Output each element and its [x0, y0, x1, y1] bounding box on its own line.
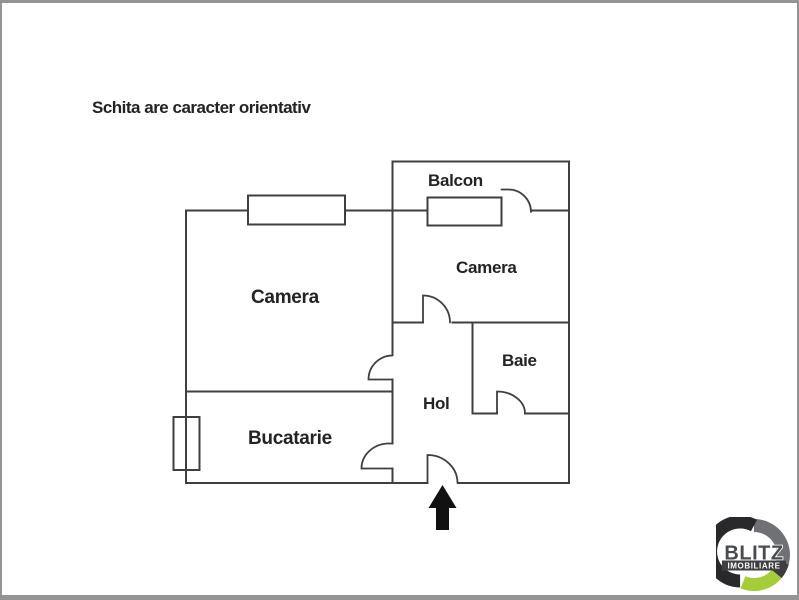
room-label-balcon: Balcon — [428, 172, 483, 189]
page-canvas: Schita are caracter orientativ Balcon Ca… — [0, 0, 799, 600]
door-camera-left — [369, 356, 393, 380]
door-kitchen — [361, 444, 392, 469]
window-camera-left — [248, 196, 345, 225]
walls — [186, 162, 569, 484]
door-baie — [497, 392, 525, 414]
room-label-camera-right: Camera — [456, 259, 517, 276]
door-camera-right — [423, 296, 450, 323]
windows — [174, 196, 502, 471]
room-label-bucatarie: Bucatarie — [248, 429, 332, 448]
floor-plan — [0, 0, 799, 600]
disclaimer-text: Schita are caracter orientativ — [92, 99, 310, 116]
entrance-arrow-icon — [429, 485, 457, 530]
door-balcony — [502, 190, 532, 213]
blitz-imobiliare-logo: BLITZ IMOBILIARE — [716, 517, 792, 593]
room-label-hol: Hol — [423, 395, 449, 412]
room-label-baie: Baie — [502, 352, 537, 369]
doors — [361, 190, 531, 484]
window-balcony — [428, 198, 502, 226]
logo-tagline-text: IMOBILIARE — [727, 562, 780, 571]
door-entrance — [428, 455, 458, 483]
room-label-camera-left: Camera — [251, 288, 319, 307]
logo-ring-green-segment — [743, 574, 777, 585]
